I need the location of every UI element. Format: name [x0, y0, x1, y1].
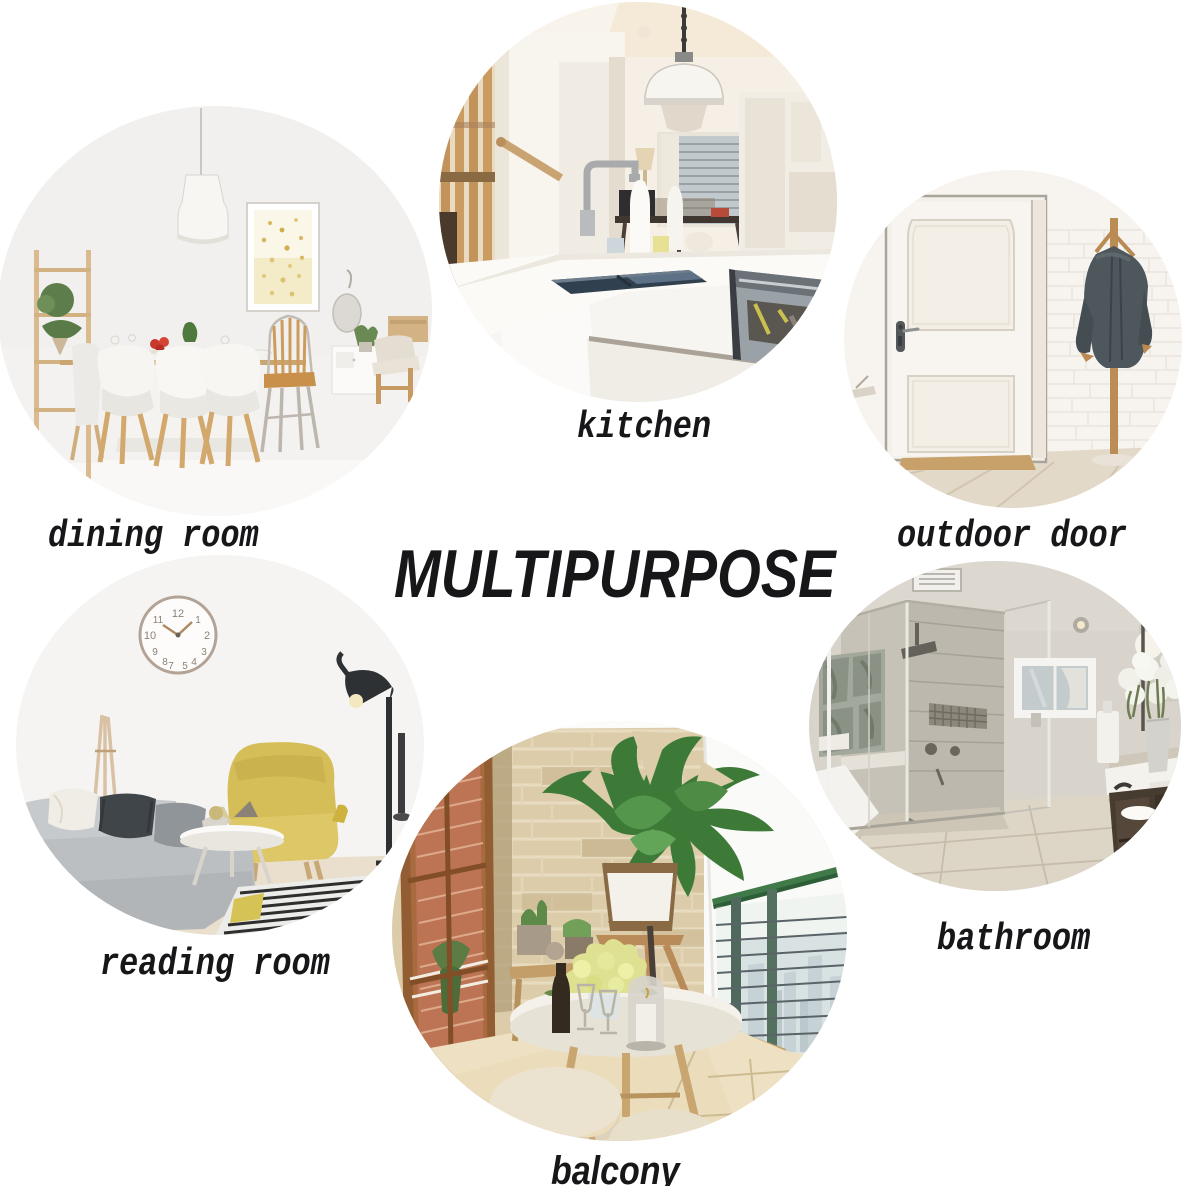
- svg-text:7: 7: [168, 661, 174, 672]
- svg-text:4: 4: [191, 657, 197, 668]
- svg-text:12: 12: [172, 608, 184, 620]
- svg-text:10: 10: [144, 630, 156, 642]
- svg-text:11: 11: [153, 615, 164, 626]
- svg-text:3: 3: [201, 647, 207, 658]
- svg-text:1: 1: [195, 615, 201, 626]
- svg-text:2: 2: [204, 630, 210, 642]
- svg-text:5: 5: [182, 661, 188, 672]
- svg-text:9: 9: [152, 647, 158, 658]
